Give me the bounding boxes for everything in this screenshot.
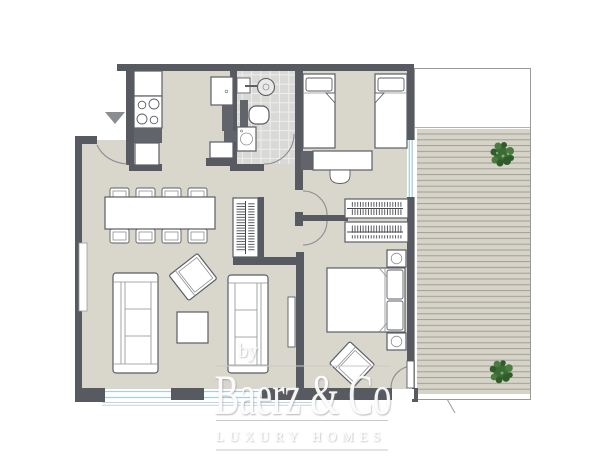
pillow: [387, 301, 403, 330]
kitchen-cabinet: [210, 142, 233, 158]
watermark-tagline: LUXURY HOMES: [216, 430, 386, 445]
terrace-decking: [417, 129, 530, 394]
watermark-brand: Baerz & Co: [215, 364, 392, 427]
pillow: [306, 78, 332, 91]
nightstand: [387, 250, 406, 267]
burner-icon: [149, 99, 159, 109]
kitchen-block: [134, 128, 162, 143]
burner-icon: [150, 116, 158, 124]
dining-table: [105, 197, 215, 229]
terrace-door-opening: [392, 389, 414, 399]
shower-panel: [240, 100, 248, 127]
terrace: [415, 69, 531, 414]
terrace-door-leaf: [407, 361, 414, 388]
burner-icon: [137, 114, 147, 124]
fridge: [211, 77, 233, 105]
terrace-upper-zone: [415, 69, 530, 127]
kitchen-cabinet: [135, 143, 159, 165]
pillow: [387, 270, 403, 299]
desk-drawer-unit: [301, 151, 313, 170]
nightstand: [387, 333, 406, 350]
kitchen-block: [222, 105, 233, 131]
desk: [313, 151, 372, 170]
watermark-by: by: [238, 340, 258, 362]
pillow: [378, 78, 404, 91]
burner-icon: [138, 101, 146, 109]
floor-plan-image: by Baerz & Co LUXURY HOMES: [0, 0, 600, 469]
entrance-arrow-icon: [105, 112, 125, 124]
shower-head-icon: [258, 79, 275, 96]
bedroom2-window: [407, 140, 415, 197]
radiator: [79, 243, 87, 311]
toilet-icon: [249, 106, 269, 124]
tv-sideboard: [288, 297, 295, 347]
washbasin: [237, 127, 256, 151]
desk-chair: [330, 170, 350, 184]
coffee-table: [177, 312, 208, 343]
floor-plan-svg: by Baerz & Co LUXURY HOMES: [0, 0, 600, 469]
living-window-left: [105, 389, 171, 400]
sofa-left: [113, 273, 158, 373]
kitchen-counter: [134, 71, 162, 96]
